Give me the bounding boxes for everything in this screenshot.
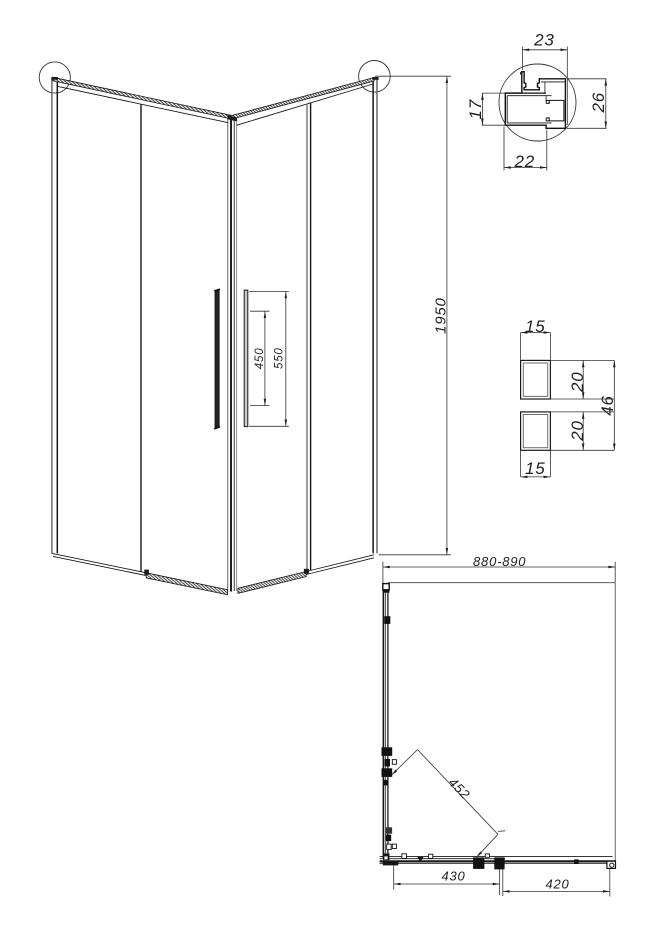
svg-text:420: 420: [545, 876, 569, 891]
svg-text:17: 17: [466, 99, 485, 120]
svg-text:880-890: 880-890: [473, 554, 526, 569]
svg-text:46: 46: [598, 395, 617, 416]
svg-text:20: 20: [568, 371, 587, 393]
svg-text:450: 450: [254, 348, 266, 370]
svg-text:15: 15: [525, 459, 546, 478]
svg-text:15: 15: [525, 317, 546, 336]
svg-text:430: 430: [441, 868, 465, 883]
svg-text:26: 26: [589, 92, 608, 114]
svg-text:22: 22: [513, 152, 535, 171]
svg-text:550: 550: [273, 347, 285, 369]
svg-text:20: 20: [568, 420, 587, 442]
svg-text:23: 23: [533, 30, 555, 49]
svg-text:1950: 1950: [432, 297, 449, 334]
